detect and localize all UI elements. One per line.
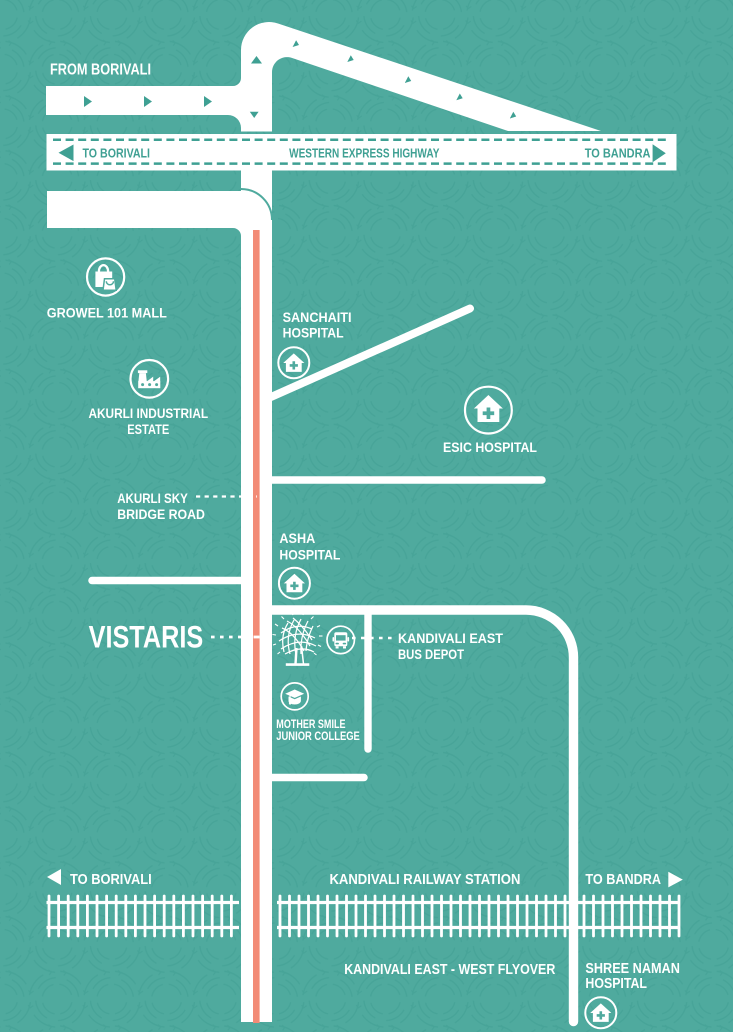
svg-text:AKURLI INDUSTRIAL: AKURLI INDUSTRIAL <box>88 406 208 421</box>
svg-text:ESIC HOSPITAL: ESIC HOSPITAL <box>443 440 537 455</box>
svg-text:JUNIOR COLLEGE: JUNIOR COLLEGE <box>276 731 360 743</box>
svg-text:TO BANDRA: TO BANDRA <box>585 872 661 888</box>
svg-text:ASHA: ASHA <box>279 531 315 546</box>
svg-text:TO BORIVALI: TO BORIVALI <box>83 146 151 161</box>
svg-text:BUS DEPOT: BUS DEPOT <box>398 647 465 662</box>
svg-text:KANDIVALI EAST: KANDIVALI EAST <box>398 631 504 646</box>
svg-text:HOSPITAL: HOSPITAL <box>585 976 647 992</box>
svg-text:WESTERN EXPRESS HIGHWAY: WESTERN EXPRESS HIGHWAY <box>289 146 440 161</box>
svg-text:TO BORIVALI: TO BORIVALI <box>70 872 152 888</box>
svg-text:HOSPITAL: HOSPITAL <box>283 326 344 341</box>
svg-text:HOSPITAL: HOSPITAL <box>279 548 340 563</box>
svg-text:SANCHAITI: SANCHAITI <box>283 310 352 325</box>
svg-text:ESTATE: ESTATE <box>127 422 169 437</box>
svg-text:SHREE NAMAN: SHREE NAMAN <box>585 961 680 977</box>
svg-text:VISTARIS: VISTARIS <box>89 619 204 655</box>
svg-text:GROWEL 101 MALL: GROWEL 101 MALL <box>47 306 167 321</box>
svg-text:AKURLI SKY: AKURLI SKY <box>117 491 188 506</box>
svg-text:KANDIVALI EAST - WEST FLYOVER: KANDIVALI EAST - WEST FLYOVER <box>344 962 556 978</box>
svg-text:FROM BORIVALI: FROM BORIVALI <box>50 62 151 79</box>
svg-text:MOTHER SMILE: MOTHER SMILE <box>276 719 345 731</box>
svg-text:KANDIVALI RAILWAY STATION: KANDIVALI RAILWAY STATION <box>330 872 521 888</box>
svg-text:TO BANDRA: TO BANDRA <box>585 146 651 161</box>
svg-text:BRIDGE ROAD: BRIDGE ROAD <box>117 507 205 522</box>
